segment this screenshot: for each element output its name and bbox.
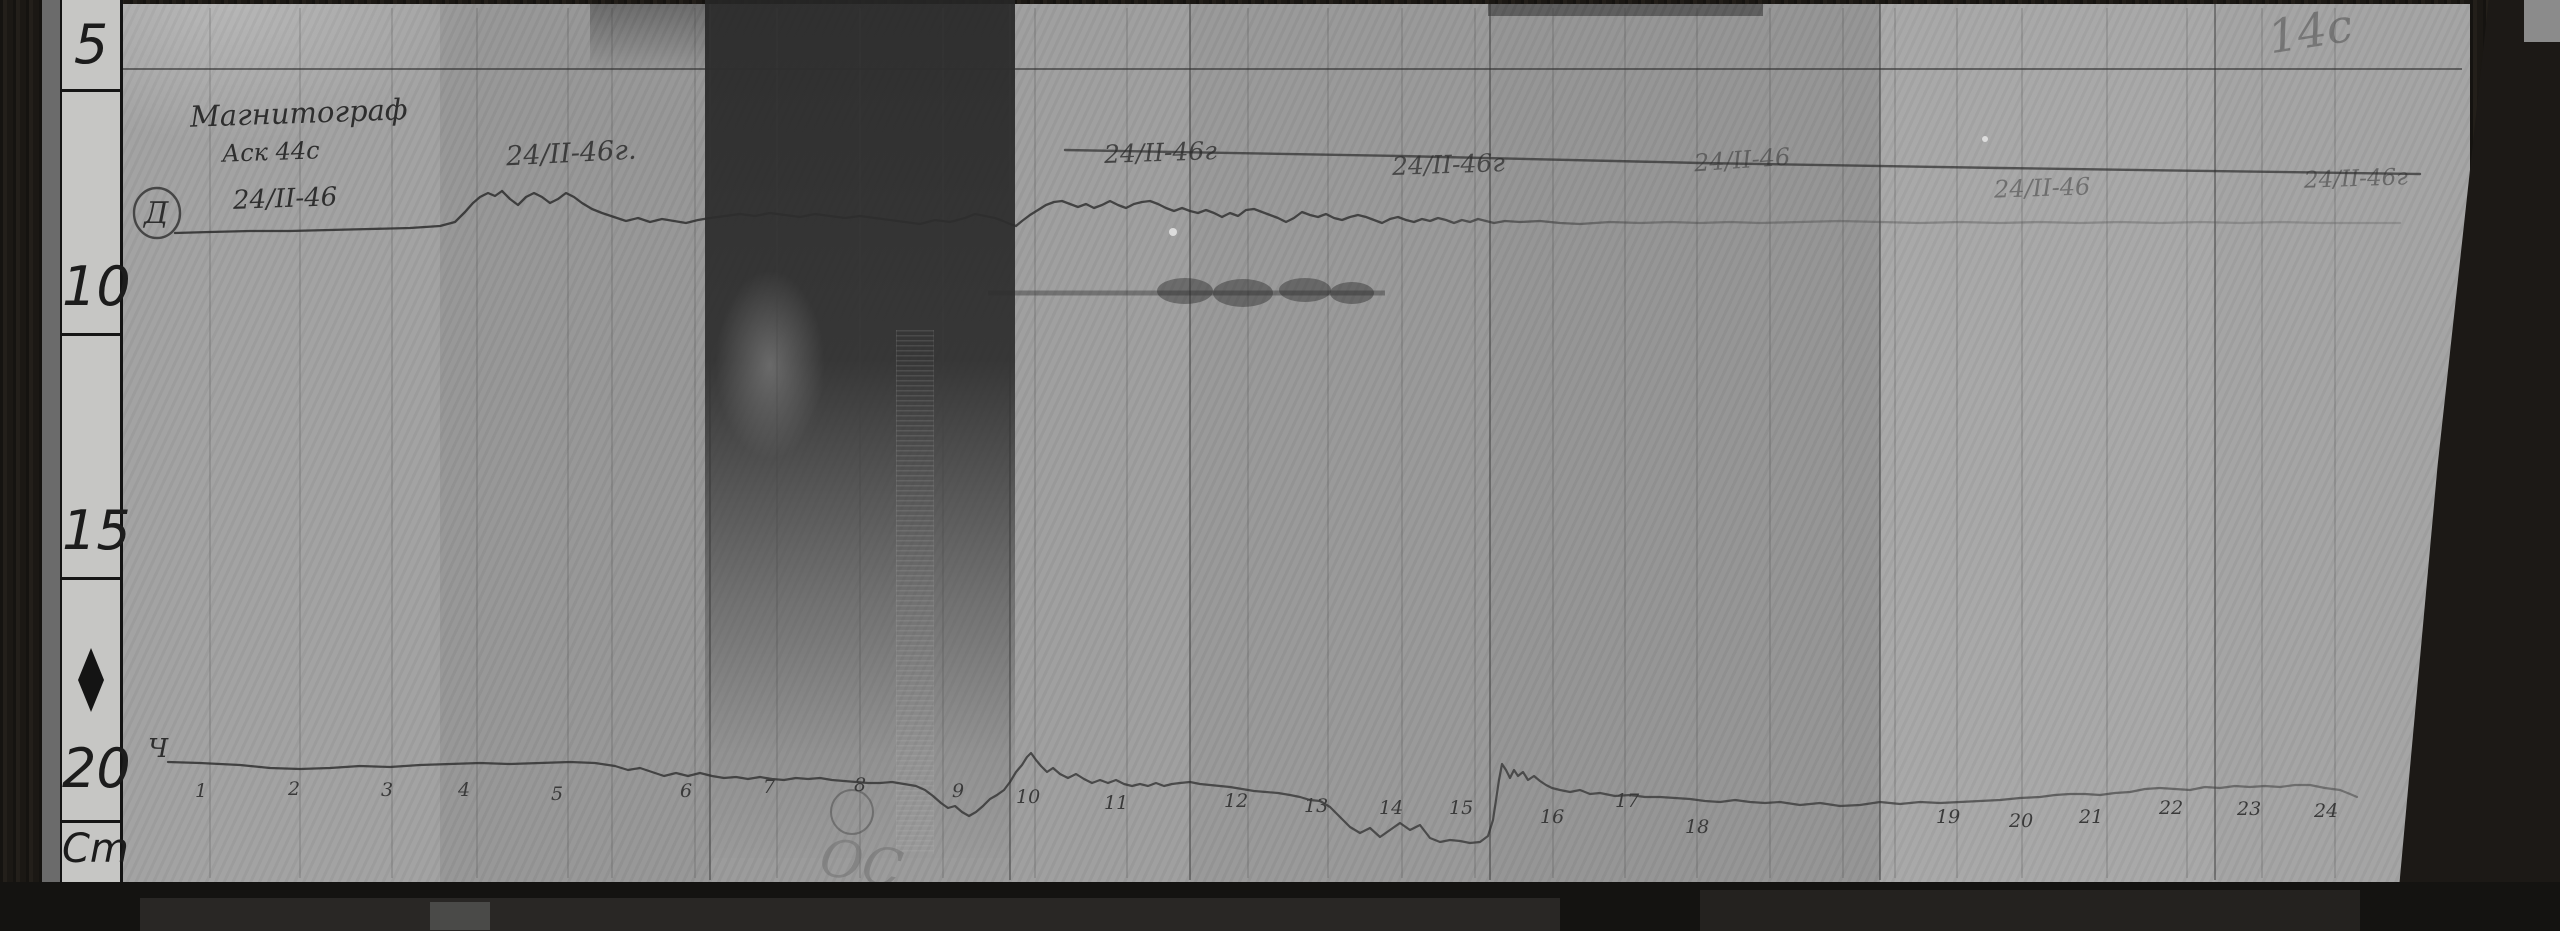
hour-number: 5	[551, 783, 563, 805]
hour-number: 1	[195, 780, 207, 802]
hour-number: 6	[680, 780, 692, 802]
photographed-magnetogram: Магнитограф Аск 44с 24/II-46 Д Ч 14с ОС …	[0, 0, 2560, 931]
hour-number: 10	[1016, 786, 1040, 808]
ruler-backing-strip	[42, 0, 60, 882]
hour-number: 2	[288, 778, 300, 800]
hour-number: 17	[1615, 790, 1639, 812]
ruler-divider-line	[62, 820, 120, 823]
ruler-divider-line	[62, 577, 120, 580]
ink-stain	[1213, 279, 1273, 307]
ruler-number: 5	[62, 18, 120, 72]
horizontal-pencil-lines	[122, 69, 2462, 293]
ruler-number: 10	[62, 260, 120, 314]
wood-board-bottom	[0, 882, 2560, 931]
ink-stain	[1279, 278, 1331, 302]
hour-number: 20	[2009, 810, 2033, 832]
date-annotation: 24/II-46	[1994, 172, 2091, 203]
centimeter-ruler: 5101520Cm	[60, 0, 123, 882]
ink-stain	[1330, 282, 1374, 304]
hour-number: 15	[1449, 797, 1473, 819]
ruler-unit-label: Cm	[62, 826, 120, 872]
ruler-number: 20	[62, 742, 120, 796]
hour-number: 16	[1540, 806, 1564, 828]
hour-number: 13	[1304, 795, 1328, 817]
trace-ch-label: Ч	[148, 734, 168, 764]
instrument-serial: Аск 44с	[222, 136, 320, 167]
paper-scrap-top-right	[2524, 0, 2560, 42]
ink-stains	[1157, 278, 1374, 307]
ruler-diamond-mark	[78, 648, 104, 712]
hour-number: 23	[2237, 798, 2261, 820]
hour-number: 21	[2079, 806, 2103, 828]
hour-number: 7	[763, 776, 775, 798]
hour-number: 18	[1685, 816, 1709, 838]
hour-number: 11	[1104, 792, 1128, 814]
emulsion-speck	[1982, 136, 1988, 142]
wood-streak	[140, 898, 1560, 931]
vertical-gridlines	[210, 8, 2335, 878]
hour-number: 4	[458, 779, 470, 801]
hour-number: 3	[381, 779, 393, 801]
wood-streak	[1700, 890, 2360, 931]
wood-streak	[430, 902, 490, 930]
recorded-traces	[168, 150, 2420, 843]
date-annotation: 24/II-46г	[1104, 136, 1218, 169]
hour-number: 19	[1936, 806, 1960, 828]
ink-stain	[1157, 278, 1213, 304]
trace-d-label: Д	[144, 196, 168, 231]
emulsion-speck	[1169, 228, 1177, 236]
ruler-number: 15	[62, 504, 120, 558]
ruler-divider-line	[62, 89, 120, 92]
sheet-seams	[710, 4, 2215, 880]
film-circle-mark	[831, 790, 873, 834]
hour-number: 14	[1379, 797, 1403, 819]
hour-number: 8	[854, 774, 866, 796]
ruler-divider-line	[62, 333, 120, 336]
hour-number: 22	[2159, 797, 2183, 819]
date-annotation: 24/II-46г	[1392, 148, 1506, 181]
hour-number: 24	[2314, 800, 2338, 822]
date-annotation: 24/II-46г	[2304, 164, 2409, 194]
hour-number: 12	[1224, 790, 1248, 812]
hour-number: 9	[952, 780, 964, 802]
main-date: 24/II-46	[233, 182, 338, 216]
